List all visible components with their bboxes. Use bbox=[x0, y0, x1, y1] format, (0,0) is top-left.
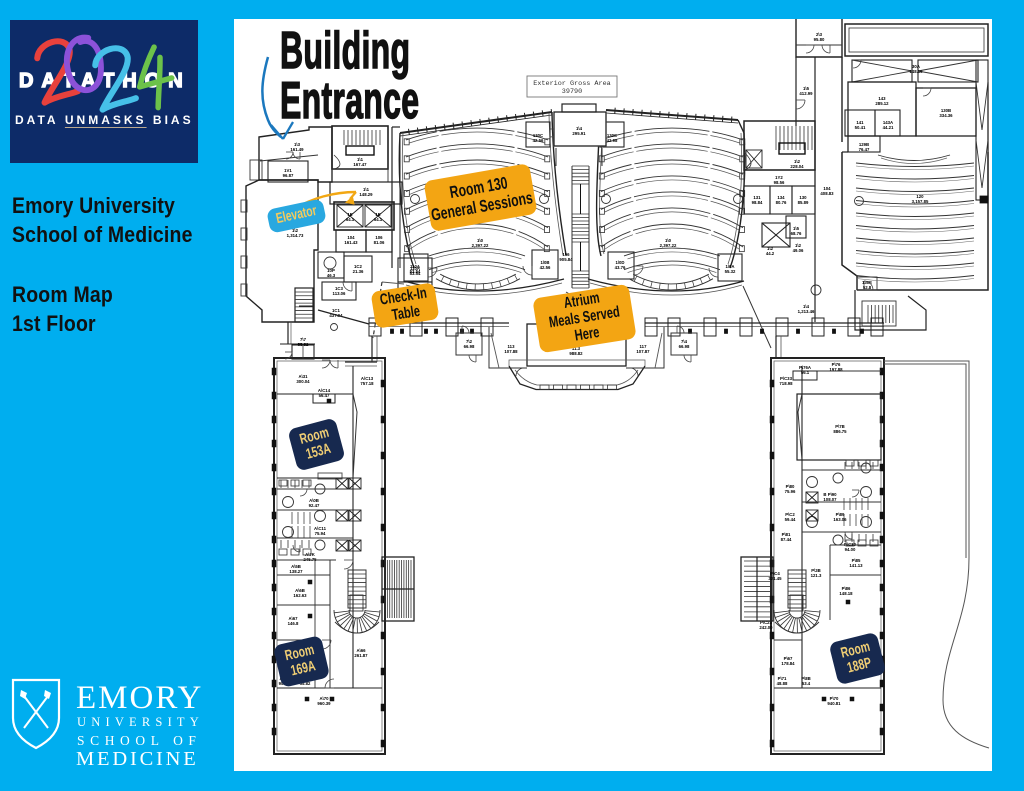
svg-text:MEDICINE: MEDICINE bbox=[76, 748, 199, 770]
svg-text:321.45: 321.45 bbox=[768, 576, 782, 581]
svg-text:95.80: 95.80 bbox=[814, 37, 825, 42]
svg-text:75.96: 75.96 bbox=[785, 489, 796, 494]
svg-text:107.87: 107.87 bbox=[636, 349, 650, 354]
svg-text:53.54: 53.54 bbox=[410, 269, 421, 274]
svg-text:SCHOOL OF: SCHOOL OF bbox=[77, 733, 202, 748]
svg-text:121.3: 121.3 bbox=[811, 573, 822, 578]
svg-text:44.2: 44.2 bbox=[766, 251, 775, 256]
svg-text:EMORY: EMORY bbox=[76, 680, 203, 716]
svg-text:80.76: 80.76 bbox=[776, 200, 787, 205]
svg-text:940.81: 940.81 bbox=[827, 701, 841, 706]
svg-text:163.06: 163.06 bbox=[833, 517, 847, 522]
svg-text:42.56: 42.56 bbox=[540, 265, 551, 270]
svg-text:92.47: 92.47 bbox=[309, 503, 320, 508]
svg-text:718.98: 718.98 bbox=[779, 381, 793, 386]
svg-text:107.88: 107.88 bbox=[504, 349, 518, 354]
svg-text:408.83: 408.83 bbox=[820, 191, 834, 196]
svg-text:148.16: 148.16 bbox=[909, 69, 923, 74]
svg-text:161.49: 161.49 bbox=[290, 147, 304, 152]
svg-text:757.18: 757.18 bbox=[360, 381, 374, 386]
svg-text:261.87: 261.87 bbox=[354, 653, 368, 658]
svg-text:146.8: 146.8 bbox=[288, 621, 299, 626]
svg-text:39790: 39790 bbox=[562, 88, 582, 96]
svg-text:167.47: 167.47 bbox=[353, 162, 367, 167]
svg-text:81.06: 81.06 bbox=[374, 240, 385, 245]
svg-text:178.84: 178.84 bbox=[781, 661, 795, 666]
svg-text:242.00: 242.00 bbox=[759, 625, 773, 630]
svg-text:56.47: 56.47 bbox=[319, 393, 330, 398]
svg-text:64.1: 64.1 bbox=[346, 217, 355, 222]
svg-text:197.88: 197.88 bbox=[829, 367, 843, 372]
svg-text:161.43: 161.43 bbox=[344, 240, 358, 245]
svg-text:53.4: 53.4 bbox=[802, 681, 811, 686]
svg-text:412.99: 412.99 bbox=[799, 91, 813, 96]
svg-text:UNIVERSITY: UNIVERSITY bbox=[77, 715, 204, 729]
svg-text:49.06: 49.06 bbox=[793, 248, 804, 253]
svg-text:988.82: 988.82 bbox=[569, 351, 583, 356]
svg-text:55.82: 55.82 bbox=[298, 342, 309, 347]
svg-text:85.89: 85.89 bbox=[798, 200, 809, 205]
svg-text:98.84: 98.84 bbox=[752, 200, 763, 205]
svg-text:55.32: 55.32 bbox=[725, 269, 736, 274]
svg-text:960.39: 960.39 bbox=[317, 701, 331, 706]
svg-text:68.76: 68.76 bbox=[791, 231, 802, 236]
svg-text:162.63: 162.63 bbox=[293, 593, 307, 598]
svg-text:94.00: 94.00 bbox=[845, 547, 856, 552]
svg-text:75.94: 75.94 bbox=[315, 531, 326, 536]
svg-text:64.1: 64.1 bbox=[374, 217, 383, 222]
svg-text:138.27: 138.27 bbox=[289, 569, 303, 574]
svg-text:334.36: 334.36 bbox=[939, 113, 953, 118]
svg-text:295.91: 295.91 bbox=[572, 131, 586, 136]
svg-text:300.04: 300.04 bbox=[296, 379, 310, 384]
svg-text:228.04: 228.04 bbox=[790, 164, 804, 169]
svg-text:141.13: 141.13 bbox=[849, 563, 863, 568]
svg-text:Exterior Gross Area: Exterior Gross Area bbox=[533, 80, 611, 88]
svg-text:59.44: 59.44 bbox=[785, 517, 796, 522]
svg-text:87.44: 87.44 bbox=[781, 537, 792, 542]
svg-text:96.87: 96.87 bbox=[283, 173, 294, 178]
svg-text:66.98: 66.98 bbox=[679, 344, 690, 349]
svg-text:2,397.22: 2,397.22 bbox=[660, 243, 677, 248]
svg-text:148.18: 148.18 bbox=[839, 591, 853, 596]
svg-text:113.06: 113.06 bbox=[333, 291, 347, 296]
svg-text:46.3: 46.3 bbox=[327, 273, 336, 278]
svg-text:48.88: 48.88 bbox=[777, 681, 788, 686]
svg-text:3,157.85: 3,157.85 bbox=[912, 199, 929, 204]
svg-text:50.41: 50.41 bbox=[855, 125, 866, 130]
svg-text:42.56: 42.56 bbox=[533, 138, 544, 143]
svg-text:44.21: 44.21 bbox=[883, 125, 894, 130]
svg-text:905.84: 905.84 bbox=[559, 257, 573, 262]
svg-text:2,397.22: 2,397.22 bbox=[472, 243, 489, 248]
svg-text:21.36: 21.36 bbox=[353, 269, 364, 274]
svg-text:66.98: 66.98 bbox=[464, 344, 475, 349]
svg-text:1,314.73: 1,314.73 bbox=[287, 233, 304, 238]
svg-text:108.07: 108.07 bbox=[823, 497, 837, 502]
svg-text:98.56: 98.56 bbox=[774, 180, 785, 185]
svg-text:148.29: 148.29 bbox=[359, 192, 373, 197]
svg-text:285.12: 285.12 bbox=[875, 101, 889, 106]
svg-text:42.98: 42.98 bbox=[607, 138, 618, 143]
svg-text:886.75: 886.75 bbox=[833, 429, 847, 434]
svg-text:76.47: 76.47 bbox=[859, 147, 870, 152]
svg-text:1,213.46: 1,213.46 bbox=[798, 309, 815, 314]
